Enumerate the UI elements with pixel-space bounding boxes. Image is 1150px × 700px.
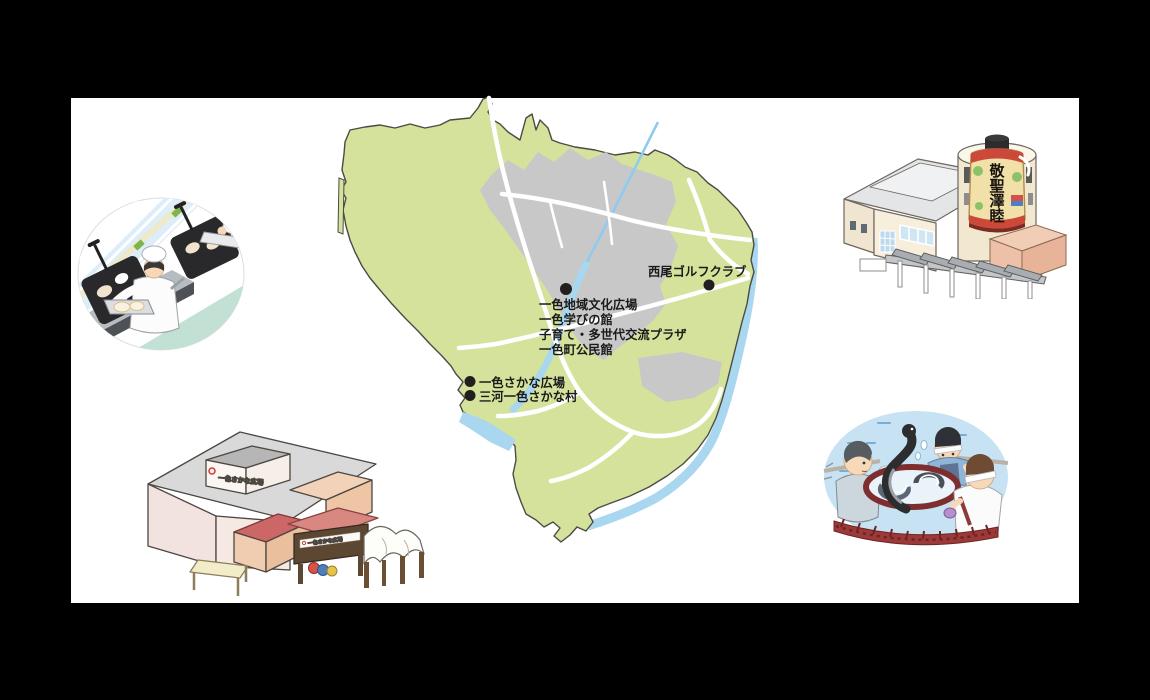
- chef-cap: [142, 246, 166, 262]
- svg-text:一色地域文化広場: 一色地域文化広場: [539, 297, 638, 312]
- grid-window: [880, 231, 895, 252]
- decorative-balls: [309, 563, 338, 577]
- marker-fish-village: [465, 390, 476, 401]
- svg-text:子育て・多世代交流プラザ: 子育て・多世代交流プラザ: [539, 327, 687, 342]
- outdoor-table: [190, 560, 248, 596]
- kiosk-booth: [860, 259, 886, 271]
- label-fish-village: 三河一色さかな村: [479, 389, 578, 404]
- page-canvas: 西尾ゴルフクラブ 一色地域文化広場 一色学びの館 子育て・多世代交流プラザ 一色…: [0, 0, 1150, 700]
- hall-left-wall: [844, 199, 874, 253]
- marker-culture-plaza: [560, 283, 572, 295]
- breakwater: [338, 178, 344, 234]
- label-golf-club: 西尾ゴルフクラブ: [648, 264, 747, 279]
- eel-basin: [866, 467, 958, 507]
- fish-market-illustration: 一色さかな広場 一色さかな広場: [142, 420, 426, 598]
- eel-grilling-kitchen-illustration: [76, 196, 246, 354]
- purple-glove: [944, 508, 956, 518]
- marker-golf-club: [704, 280, 715, 291]
- svg-text:一色学びの館: 一色学びの館: [539, 312, 613, 327]
- marker-fish-plaza: [465, 376, 476, 387]
- lantern-char-4: 睦: [989, 207, 1004, 225]
- canopy-tunnel: [364, 526, 424, 588]
- giant-lantern-hall-illustration: 敬 聖 澤 睦: [840, 113, 1068, 299]
- label-fish-plaza: 一色さかな広場: [479, 375, 566, 390]
- eel-harvest-illustration: [820, 405, 1012, 557]
- svg-text:一色町公民館: 一色町公民館: [539, 342, 613, 357]
